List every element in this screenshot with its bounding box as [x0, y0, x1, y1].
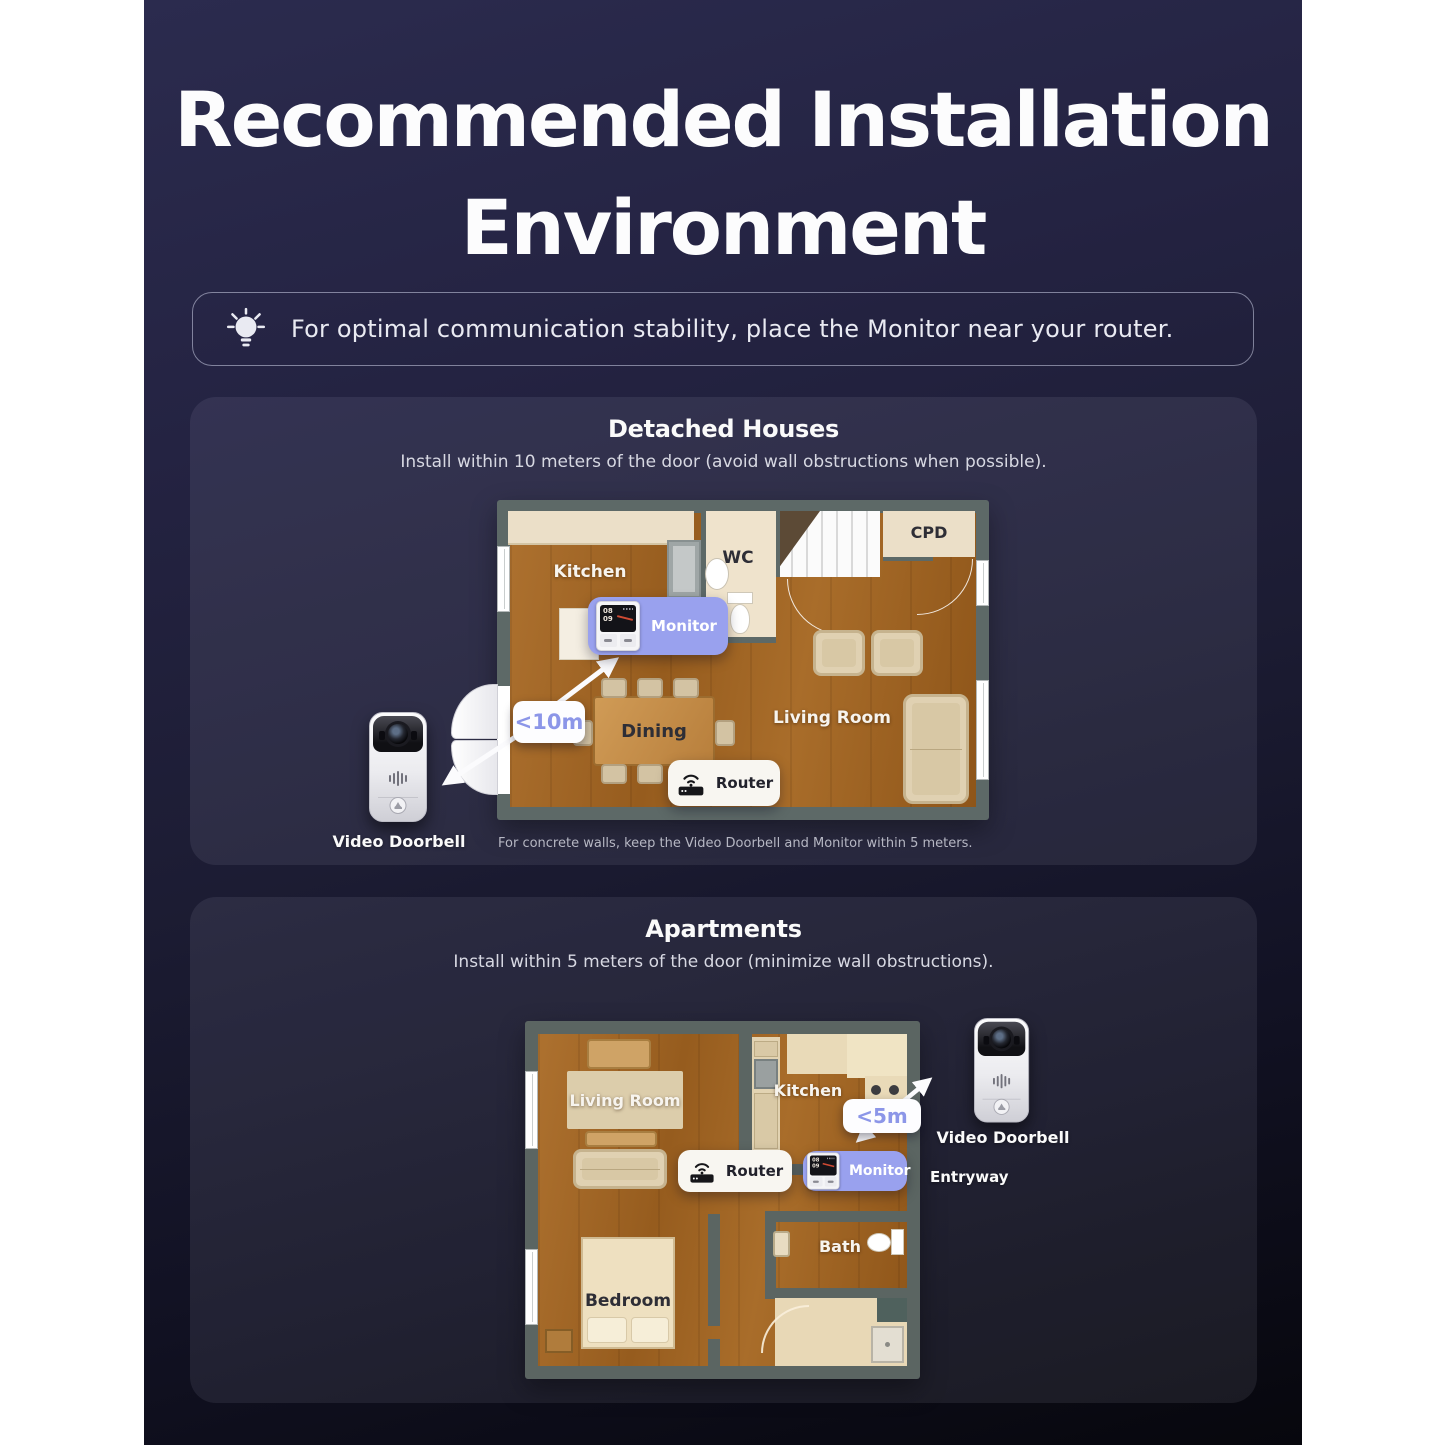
bath-toilet-bowl [867, 1233, 891, 1252]
dining-chair [601, 678, 627, 698]
concrete-wall-note: For concrete walls, keep the Video Doorb… [498, 836, 973, 851]
doorbell-sensor [984, 1036, 990, 1045]
window-left-1 [525, 1071, 538, 1149]
monitor-call-button [600, 634, 617, 647]
pillow [631, 1317, 669, 1343]
kitchen-counter-a [787, 1034, 847, 1074]
room-label-kitchen: Kitchen [535, 562, 645, 582]
monitor-badge-detached: 08 09 Monitor [588, 597, 728, 655]
router-badge-detached: Router [668, 760, 780, 806]
window-right-bottom [976, 680, 989, 780]
video-doorbell-device-detached [369, 712, 427, 822]
shower-room-corner [877, 1298, 907, 1322]
video-doorbell-device-apartment [974, 1018, 1029, 1123]
monitor-call-button [810, 1177, 822, 1187]
monitor-clock-minute: 09 [603, 616, 613, 624]
room-label-dining: Dining [593, 721, 715, 742]
apartments-title: Apartments [190, 915, 1257, 943]
monitor-screen: 08 09 [600, 605, 636, 632]
monitor-buttons [600, 634, 636, 647]
room-label-wc: WC [713, 548, 763, 568]
doorbell-camera [978, 1022, 1026, 1056]
monitor-device-image: 08 09 [596, 601, 640, 651]
room-label-living: Living Room [765, 708, 899, 728]
entryway-label: Entryway [930, 1168, 1020, 1186]
room-label-living: Living Room [567, 1091, 683, 1110]
pillow [587, 1317, 627, 1343]
page-title-line1: Recommended Installation [144, 66, 1302, 174]
kitchen-sink [667, 540, 701, 598]
burner [889, 1085, 899, 1095]
doorbell-camera [373, 716, 423, 752]
wc-toilet-tank [727, 592, 753, 604]
monitor-status-dots [623, 608, 633, 610]
page-title-line2: Environment [144, 174, 1302, 282]
apartment-sofa [573, 1149, 667, 1189]
doorbell-label-apartment: Video Doorbell [918, 1128, 1088, 1147]
hall-wall-b [708, 1339, 720, 1366]
router-icon [675, 769, 707, 797]
dining-chair [637, 678, 663, 698]
entry-opening [497, 686, 510, 794]
nightstand [545, 1329, 573, 1353]
router-badge-apartment: Router [678, 1150, 792, 1192]
closet-box [754, 1093, 778, 1149]
monitor-answer-button [824, 1177, 836, 1187]
doorbell-lens [388, 724, 408, 744]
monitor-status-dots [827, 1158, 834, 1159]
stairs-wall [776, 511, 780, 577]
shower-drain [885, 1342, 890, 1347]
monitor-graph-line [823, 1163, 835, 1167]
bell-icon [394, 802, 402, 809]
detached-houses-subtitle: Install within 10 meters of the door (av… [190, 452, 1257, 472]
doorbell-label-detached: Video Doorbell [309, 832, 489, 851]
monitor-screen: 08 09 [810, 1155, 837, 1175]
shower-tray [871, 1326, 904, 1363]
bath-sink [773, 1231, 790, 1257]
doorbell-sensor [411, 731, 417, 740]
monitor-graph-line [617, 615, 633, 621]
lightbulb-icon [223, 306, 269, 352]
closet-box [754, 1041, 778, 1057]
living-bench-bottom [585, 1131, 657, 1147]
room-label-kitchen: Kitchen [763, 1081, 853, 1100]
kitchen-counter-b [847, 1034, 907, 1078]
sink-basin [673, 546, 695, 592]
doorbell-sensor [379, 731, 385, 740]
dining-chair [673, 678, 699, 698]
monitor-badge-apartment: 08 09 Monitor [803, 1151, 907, 1191]
room-label-bath: Bath [810, 1237, 870, 1256]
dining-chair [637, 764, 663, 784]
window-right-top [976, 560, 989, 606]
monitor-badge-label: Monitor [849, 1163, 911, 1179]
window-left [497, 546, 510, 612]
monitor-clock: 08 09 [603, 608, 613, 623]
dining-chair [601, 764, 627, 784]
hall-wall-a [708, 1214, 720, 1326]
apartment-floorplan: Living Room Kitchen Bedroom Bath [525, 1021, 920, 1379]
room-label-cpd: CPD [883, 523, 975, 542]
monitor-device-image: 08 09 [807, 1153, 840, 1190]
detached-houses-title: Detached Houses [190, 415, 1257, 443]
bath-bottom-wall [765, 1288, 907, 1298]
living-bench-top [587, 1039, 651, 1069]
doorbell-button [390, 797, 407, 814]
distance-label-detached: <10m [513, 701, 585, 743]
bath-toilet-tank [891, 1229, 904, 1255]
tip-banner: For optimal communication stability, pla… [192, 292, 1254, 366]
router-badge-label: Router [716, 774, 773, 792]
doorbell-sensor [1014, 1036, 1020, 1045]
window-left-2 [525, 1249, 538, 1325]
divider-wall [739, 1034, 752, 1164]
tip-text: For optimal communication stability, pla… [291, 315, 1173, 343]
monitor-clock-minute: 09 [812, 1163, 819, 1169]
dining-chair [715, 720, 735, 746]
router-badge-label: Router [726, 1162, 783, 1180]
burner [871, 1085, 881, 1095]
monitor-answer-button [620, 634, 637, 647]
sofa [903, 694, 969, 804]
infographic-canvas: Recommended Installation Environment For… [0, 0, 1445, 1445]
doorbell-speaker [993, 1074, 1010, 1088]
monitor-clock: 08 09 [812, 1158, 819, 1169]
router-icon [687, 1158, 717, 1184]
armchair [871, 630, 923, 676]
bell-icon [998, 1104, 1006, 1111]
apartments-subtitle: Install within 5 meters of the door (min… [190, 952, 1257, 972]
monitor-buttons [810, 1177, 837, 1187]
doorbell-button [993, 1099, 1009, 1115]
armchair [813, 630, 865, 676]
monitor-badge-label: Monitor [648, 617, 720, 635]
doorbell-speaker [389, 771, 407, 786]
room-label-bedroom: Bedroom [577, 1291, 679, 1311]
wc-toilet-bowl [730, 604, 750, 634]
page-title: Recommended Installation Environment [144, 66, 1302, 282]
doorbell-lens [992, 1029, 1011, 1048]
distance-label-apartment: <5m [843, 1099, 921, 1133]
bath-top-wall [765, 1211, 907, 1222]
